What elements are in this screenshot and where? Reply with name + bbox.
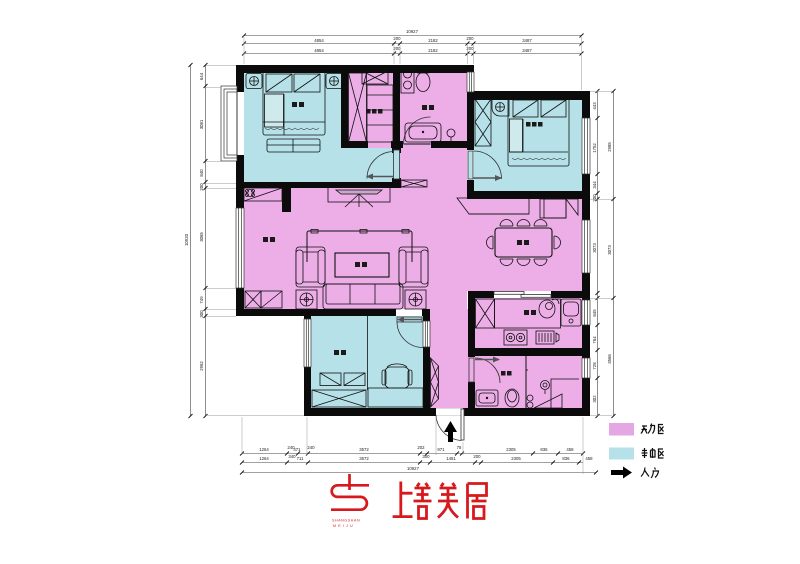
svg-text:2305: 2305 <box>511 456 521 461</box>
svg-text:3081: 3081 <box>199 119 204 129</box>
svg-text:711: 711 <box>297 456 304 461</box>
svg-text:3487: 3487 <box>522 48 532 53</box>
svg-text:3073: 3073 <box>607 245 612 255</box>
svg-text:302: 302 <box>592 395 597 403</box>
svg-text:SHANGSHAN: SHANGSHAN <box>332 519 360 523</box>
svg-text:845: 845 <box>592 309 597 317</box>
svg-text:3073: 3073 <box>592 243 597 253</box>
svg-text:3572: 3572 <box>359 447 369 452</box>
svg-text:2985: 2985 <box>607 142 612 152</box>
svg-text:300: 300 <box>422 454 430 459</box>
svg-text:3065: 3065 <box>199 232 204 242</box>
svg-text:2182: 2182 <box>428 48 438 53</box>
svg-text:4854: 4854 <box>314 38 324 43</box>
svg-text:836: 836 <box>540 447 548 452</box>
svg-text:840: 840 <box>199 169 204 177</box>
svg-text:240: 240 <box>307 445 315 450</box>
svg-text:200: 200 <box>199 183 204 191</box>
svg-text:2182: 2182 <box>428 38 438 43</box>
svg-text:836: 836 <box>562 456 570 461</box>
svg-text:764: 764 <box>592 336 597 344</box>
svg-text:2962: 2962 <box>199 361 204 371</box>
svg-text:MEIJU: MEIJU <box>333 524 355 528</box>
svg-text:300: 300 <box>199 310 204 318</box>
svg-text:1752: 1752 <box>592 143 597 153</box>
svg-text:4854: 4854 <box>314 48 324 53</box>
svg-text:200: 200 <box>473 454 481 459</box>
svg-text:2305: 2305 <box>506 447 516 452</box>
svg-text:443: 443 <box>592 102 597 110</box>
svg-text:3487: 3487 <box>522 38 532 43</box>
svg-text:1264: 1264 <box>259 456 269 461</box>
svg-text:644: 644 <box>199 72 204 80</box>
svg-text:458: 458 <box>566 447 574 452</box>
svg-text:728: 728 <box>592 362 597 370</box>
svg-text:1264: 1264 <box>259 447 269 452</box>
svg-text:344: 344 <box>592 181 597 189</box>
svg-text:458: 458 <box>585 456 593 461</box>
svg-text:202: 202 <box>417 445 425 450</box>
svg-text:471: 471 <box>293 447 301 452</box>
svg-text:10927: 10927 <box>406 29 419 34</box>
svg-text:200: 200 <box>466 36 474 41</box>
svg-text:749: 749 <box>199 296 204 304</box>
svg-text:200: 200 <box>592 194 597 202</box>
svg-text:971: 971 <box>437 447 445 452</box>
svg-text:3572: 3572 <box>359 456 369 461</box>
svg-text:78: 78 <box>457 445 462 450</box>
svg-text:3566: 3566 <box>607 354 612 364</box>
svg-text:340: 340 <box>288 454 296 459</box>
svg-text:200: 200 <box>393 36 401 41</box>
svg-text:10920: 10920 <box>184 233 189 246</box>
svg-text:10927: 10927 <box>407 466 420 471</box>
svg-text:1451: 1451 <box>446 456 456 461</box>
